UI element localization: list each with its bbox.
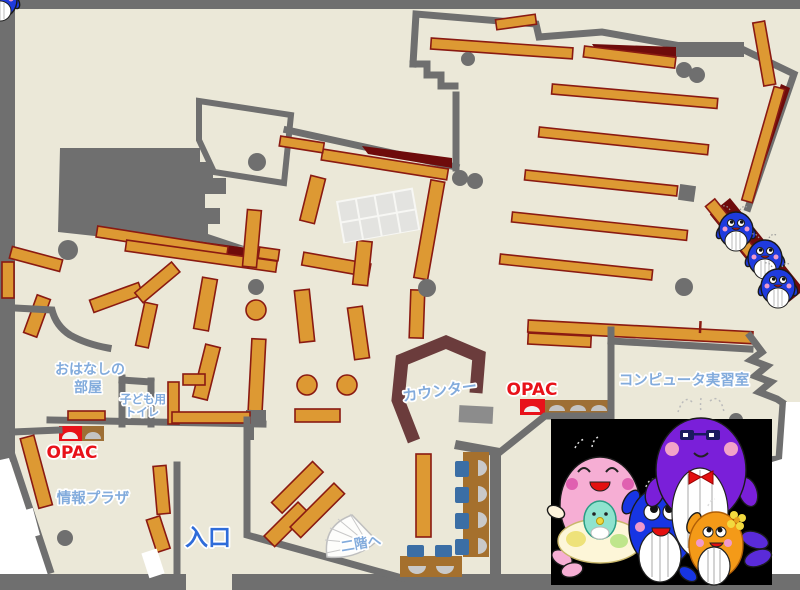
round-table: [246, 300, 266, 320]
bookshelf: [2, 262, 14, 298]
label-kids-toilet-line1: 子ども用: [120, 392, 166, 406]
library-floor-map: おはなしの 部屋 子ども用 トイレ OPAC 情報プラザ 入口 カウンター OP…: [0, 0, 800, 590]
label-computer-room: コンピュータ実習室: [619, 371, 750, 389]
wall-stub-shelf-end: [678, 184, 696, 202]
pillar: [248, 279, 264, 295]
pillar: [467, 173, 483, 189]
label-kids-toilet-line2: トイレ: [125, 405, 160, 419]
bookshelf-storytelling: [68, 411, 105, 420]
pillar: [248, 153, 266, 171]
label-storytelling-room-line2: 部屋: [74, 379, 102, 396]
round-table: [337, 375, 357, 395]
outer-wall-top: [6, 0, 800, 9]
bookshelf: [295, 409, 340, 422]
label-opac-right: OPAC: [507, 380, 558, 400]
pillar: [418, 279, 436, 297]
pillar: [58, 240, 78, 260]
entrance-opening: [186, 562, 232, 590]
counter-desk: [459, 405, 494, 424]
round-table: [297, 375, 317, 395]
chair: [435, 545, 452, 557]
label-entrance: 入口: [185, 525, 231, 551]
chair: [455, 539, 469, 555]
bookshelf: [528, 333, 591, 347]
label-opac-left: OPAC: [47, 443, 98, 463]
label-storytelling-room-line1: おはなしの: [55, 362, 125, 378]
wall-chunk-top-right: [674, 42, 744, 57]
room-top-left: [199, 101, 291, 183]
chair: [455, 461, 469, 477]
floor-map-svg: おはなしの 部屋 子ども用 トイレ OPAC 情報プラザ 入口 カウンター OP…: [0, 0, 800, 590]
chair: [455, 487, 469, 503]
chair: [407, 545, 424, 557]
pillar: [675, 278, 693, 296]
pillar: [689, 67, 705, 83]
opac-left-station: [59, 426, 104, 441]
chair: [455, 513, 469, 529]
pillar: [452, 170, 468, 186]
wall-info-plaza-top: [13, 430, 59, 432]
bookshelf: [409, 290, 425, 338]
bookshelf: [258, 247, 279, 261]
bookshelf-l-horizontal: [172, 412, 250, 423]
bookshelf: [183, 374, 205, 385]
outer-wall-left: [0, 0, 15, 462]
bookshelf: [248, 339, 266, 412]
pillar: [57, 530, 73, 546]
label-info-plaza: 情報プラザ: [57, 489, 130, 507]
pillar: [461, 52, 475, 66]
